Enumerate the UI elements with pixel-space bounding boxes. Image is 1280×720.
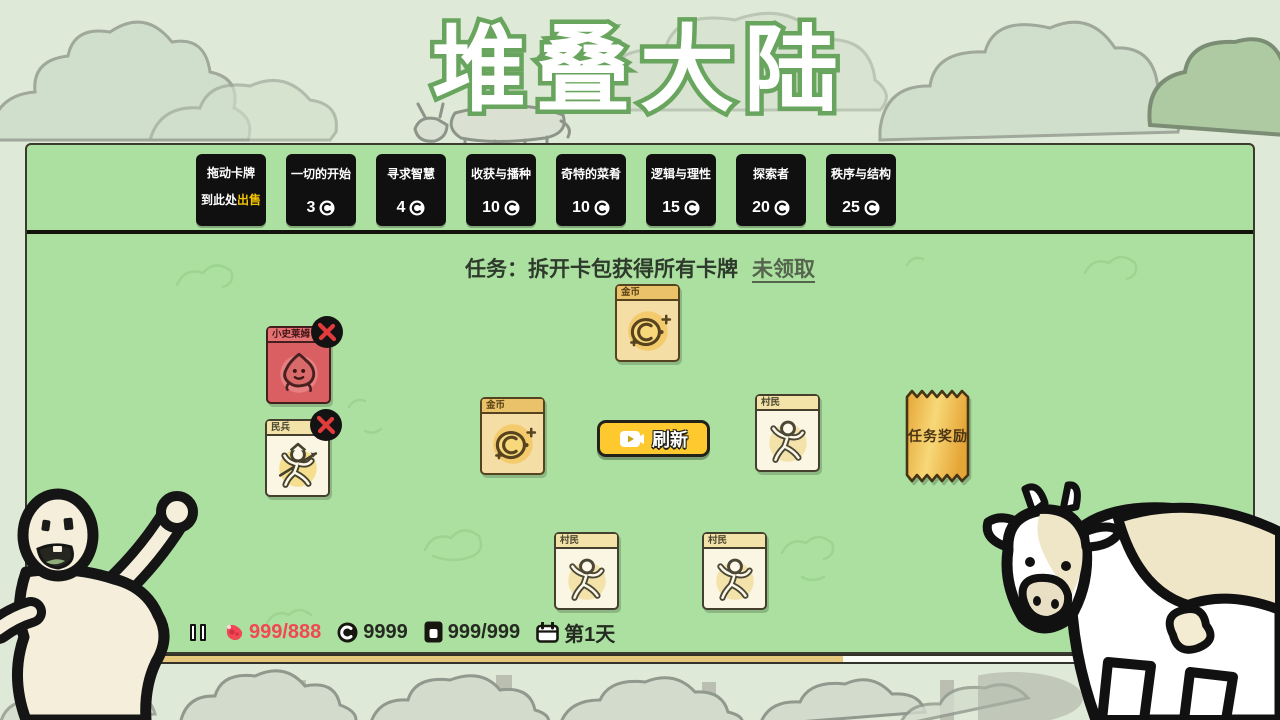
militia-illustration	[267, 436, 328, 495]
card-pack-button-4[interactable]: 奇特的菜肴 10	[556, 154, 626, 226]
quest-claim-link[interactable]: 未领取	[752, 258, 815, 283]
card-pack-button-5[interactable]: 逻辑与理性 15	[646, 154, 716, 226]
card-pack-button-6[interactable]: 探索者 20	[736, 154, 806, 226]
cards-value: 999/999	[448, 621, 520, 644]
card-title: 小史莱姆	[272, 329, 310, 340]
card-villager[interactable]: 村民	[755, 394, 820, 472]
sell-area-button[interactable]: 拖动卡牌 到此处出售	[196, 154, 266, 226]
video-play-icon	[619, 430, 645, 448]
card-title: 金币	[621, 287, 640, 298]
card-pack-button-2[interactable]: 寻求智慧 4	[376, 154, 446, 226]
refresh-button[interactable]: 刷新	[597, 420, 710, 457]
status-bar: 999/888 9999 999/999	[190, 619, 615, 645]
card-pack-button-3[interactable]: 收获与播种 10	[466, 154, 536, 226]
task-reward-ticket[interactable]: 任务奖励	[905, 388, 971, 484]
food-stat: 999/888	[224, 621, 321, 644]
card-gold-coin[interactable]: 金币	[480, 397, 545, 475]
game-title: 堆叠大陆	[0, 0, 1280, 130]
card-pack-button-7[interactable]: 秩序与结构 25	[826, 154, 896, 226]
card-gold-coin[interactable]: 金币	[615, 284, 680, 362]
day-value: 第1天	[564, 618, 615, 647]
red-x-icon	[316, 415, 336, 435]
card-pack-button-1[interactable]: 一切的开始 3	[286, 154, 356, 226]
sell-highlight: 出售	[237, 193, 261, 207]
coin-icon	[684, 200, 700, 216]
villager-illustration	[757, 411, 818, 470]
attack-badge	[311, 316, 343, 348]
villager-illustration	[704, 549, 765, 608]
card-title: 村民	[708, 535, 727, 546]
sell-line1: 拖动卡牌	[196, 154, 266, 181]
coin-icon	[504, 200, 520, 216]
food-value: 999/888	[249, 621, 321, 644]
coin-icon	[337, 622, 358, 643]
villager-illustration	[556, 549, 617, 608]
card-stack-icon	[424, 621, 443, 643]
coin-illustration	[617, 301, 678, 360]
coins-value: 9999	[363, 621, 408, 644]
attack-badge	[310, 409, 342, 441]
coin-icon	[864, 200, 880, 216]
game-screen: 堆叠大陆 拖动卡牌 到此处出售 一切的开始 3 寻求智慧	[0, 0, 1280, 720]
card-title: 村民	[761, 397, 780, 408]
card-title: 金币	[486, 400, 505, 411]
coins-stat: 9999	[337, 621, 408, 644]
coin-icon	[594, 200, 610, 216]
ticket-label: 任务奖励	[905, 388, 971, 484]
quest-label: 任务：拆开卡包获得所有卡牌	[465, 258, 738, 281]
sell-line2: 到此处出售	[196, 191, 266, 208]
day-stat: 第1天	[536, 618, 615, 647]
refresh-label: 刷新	[652, 426, 688, 452]
coin-icon	[409, 200, 425, 216]
card-villager[interactable]: 村民	[554, 532, 619, 610]
coin-icon	[774, 200, 790, 216]
slime-illustration	[268, 343, 329, 402]
coin-icon	[319, 200, 335, 216]
card-title: 民兵	[271, 422, 290, 433]
doodle-cow	[978, 470, 1280, 720]
quest-text: 任务：拆开卡包获得所有卡牌未领取	[27, 253, 1253, 283]
card-militia[interactable]: 民兵	[265, 419, 330, 497]
cards-stat: 999/999	[424, 621, 520, 644]
shop-divider	[27, 230, 1253, 234]
red-x-icon	[317, 322, 337, 342]
calendar-icon	[536, 622, 559, 643]
card-small-slime[interactable]: 小史莱姆	[266, 326, 331, 404]
doodle-character	[0, 487, 238, 720]
card-villager[interactable]: 村民	[702, 532, 767, 610]
card-title: 村民	[560, 535, 579, 546]
coin-illustration	[482, 414, 543, 473]
